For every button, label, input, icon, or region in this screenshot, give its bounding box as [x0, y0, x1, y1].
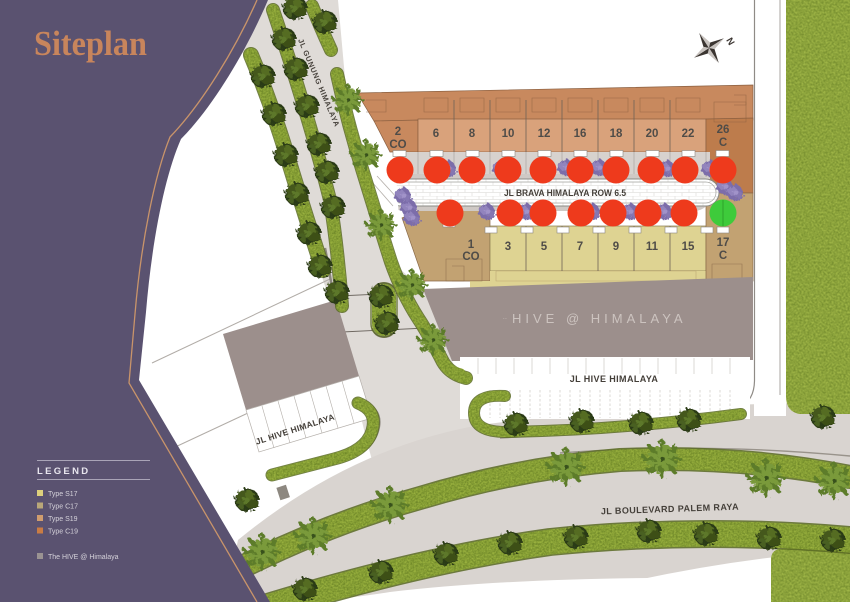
svg-text:8: 8: [469, 128, 476, 140]
svg-text:C: C: [719, 137, 727, 149]
svg-text:JL BRAVA HIMALAYA ROW 6.5: JL BRAVA HIMALAYA ROW 6.5: [504, 188, 626, 198]
svg-text:CO: CO: [389, 139, 406, 151]
svg-text:Type S17: Type S17: [48, 491, 78, 498]
svg-text:3: 3: [505, 241, 511, 253]
svg-text:26: 26: [717, 124, 730, 136]
svg-text:22: 22: [682, 128, 695, 140]
svg-text:2: 2: [395, 126, 401, 138]
svg-text:18: 18: [610, 128, 623, 140]
svg-text:17: 17: [717, 237, 730, 249]
svg-text:CO: CO: [462, 251, 479, 263]
svg-text:10: 10: [502, 128, 515, 140]
svg-text:15: 15: [682, 241, 695, 253]
svg-text:16: 16: [574, 128, 587, 140]
svg-text:The HIVE @ Himalaya: The HIVE @ Himalaya: [48, 554, 119, 561]
svg-text:5: 5: [541, 241, 548, 253]
svg-text:HIVE @ HIMALAYA: HIVE @ HIMALAYA: [512, 311, 687, 326]
svg-text:12: 12: [538, 128, 551, 140]
svg-text:LEGEND: LEGEND: [37, 466, 90, 477]
svg-text:Type S19: Type S19: [48, 516, 78, 523]
svg-text:6: 6: [433, 128, 439, 140]
svg-text:..: ..: [503, 315, 507, 321]
svg-text:Type C17: Type C17: [48, 504, 78, 511]
svg-text:20: 20: [646, 128, 659, 140]
svg-text:1: 1: [468, 239, 475, 251]
svg-text:Type C19: Type C19: [48, 529, 78, 536]
svg-text:7: 7: [577, 241, 583, 253]
svg-text:C: C: [719, 250, 727, 262]
svg-text:JL HIVE HIMALAYA: JL HIVE HIMALAYA: [570, 374, 659, 384]
svg-text:9: 9: [613, 241, 619, 253]
svg-text:11: 11: [646, 241, 659, 253]
svg-text:Siteplan: Siteplan: [34, 24, 147, 63]
